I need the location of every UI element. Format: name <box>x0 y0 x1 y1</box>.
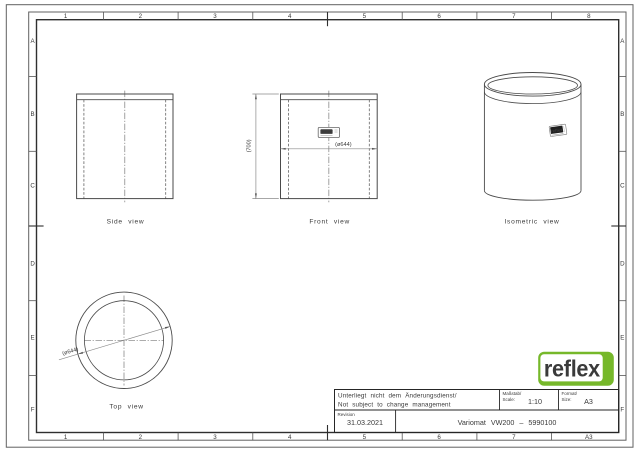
svg-text:C: C <box>30 183 35 190</box>
svg-text:5: 5 <box>363 13 367 20</box>
svg-text:(700): (700) <box>246 139 252 152</box>
svg-text:Scale:: Scale: <box>503 397 516 402</box>
svg-text:7: 7 <box>512 434 516 441</box>
svg-text:6: 6 <box>437 434 441 441</box>
svg-text:B: B <box>620 111 624 118</box>
svg-text:E: E <box>31 335 35 342</box>
svg-text:Size:: Size: <box>562 397 572 402</box>
svg-text:A3: A3 <box>584 397 593 406</box>
svg-text:Isometric view: Isometric view <box>504 219 559 226</box>
svg-text:2: 2 <box>139 434 143 441</box>
svg-text:reflex: reflex <box>322 130 332 134</box>
svg-text:Maßstab/: Maßstab/ <box>503 391 523 396</box>
svg-text:Variomat VW200 – 5990100: Variomat VW200 – 5990100 <box>458 418 557 427</box>
svg-text:Unterliegt nicht dem Änderungs: Unterliegt nicht dem Änderungsdienst/ <box>338 391 457 399</box>
svg-text:Top view: Top view <box>109 404 143 411</box>
svg-text:D: D <box>30 261 35 268</box>
svg-text:5: 5 <box>363 434 367 441</box>
svg-text:4: 4 <box>288 13 292 20</box>
svg-text:8: 8 <box>587 13 591 20</box>
svg-text:A3: A3 <box>585 434 593 441</box>
svg-text:31.03.2021: 31.03.2021 <box>347 418 383 427</box>
svg-text:F: F <box>31 407 35 414</box>
svg-text:6: 6 <box>437 13 441 20</box>
svg-text:(ø644): (ø644) <box>335 142 352 148</box>
svg-text:4: 4 <box>288 434 292 441</box>
svg-text:2: 2 <box>139 13 143 20</box>
svg-text:Not subject to change manageme: Not subject to change management <box>338 401 451 408</box>
svg-text:Side view: Side view <box>107 219 145 226</box>
svg-text:1: 1 <box>64 434 68 441</box>
svg-text:Front view: Front view <box>309 219 350 226</box>
svg-text:Format/: Format/ <box>562 391 578 396</box>
svg-text:1: 1 <box>64 13 68 20</box>
svg-text:C: C <box>620 183 625 190</box>
svg-text:E: E <box>620 335 624 342</box>
svg-text:B: B <box>31 111 35 118</box>
svg-text:1:10: 1:10 <box>528 397 542 406</box>
svg-text:reflex: reflex <box>544 356 601 382</box>
svg-text:F: F <box>620 407 624 414</box>
svg-text:D: D <box>620 261 625 268</box>
svg-text:3: 3 <box>213 434 217 441</box>
svg-text:Revision: Revision <box>338 412 356 417</box>
svg-text:7: 7 <box>512 13 516 20</box>
svg-text:3: 3 <box>213 13 217 20</box>
